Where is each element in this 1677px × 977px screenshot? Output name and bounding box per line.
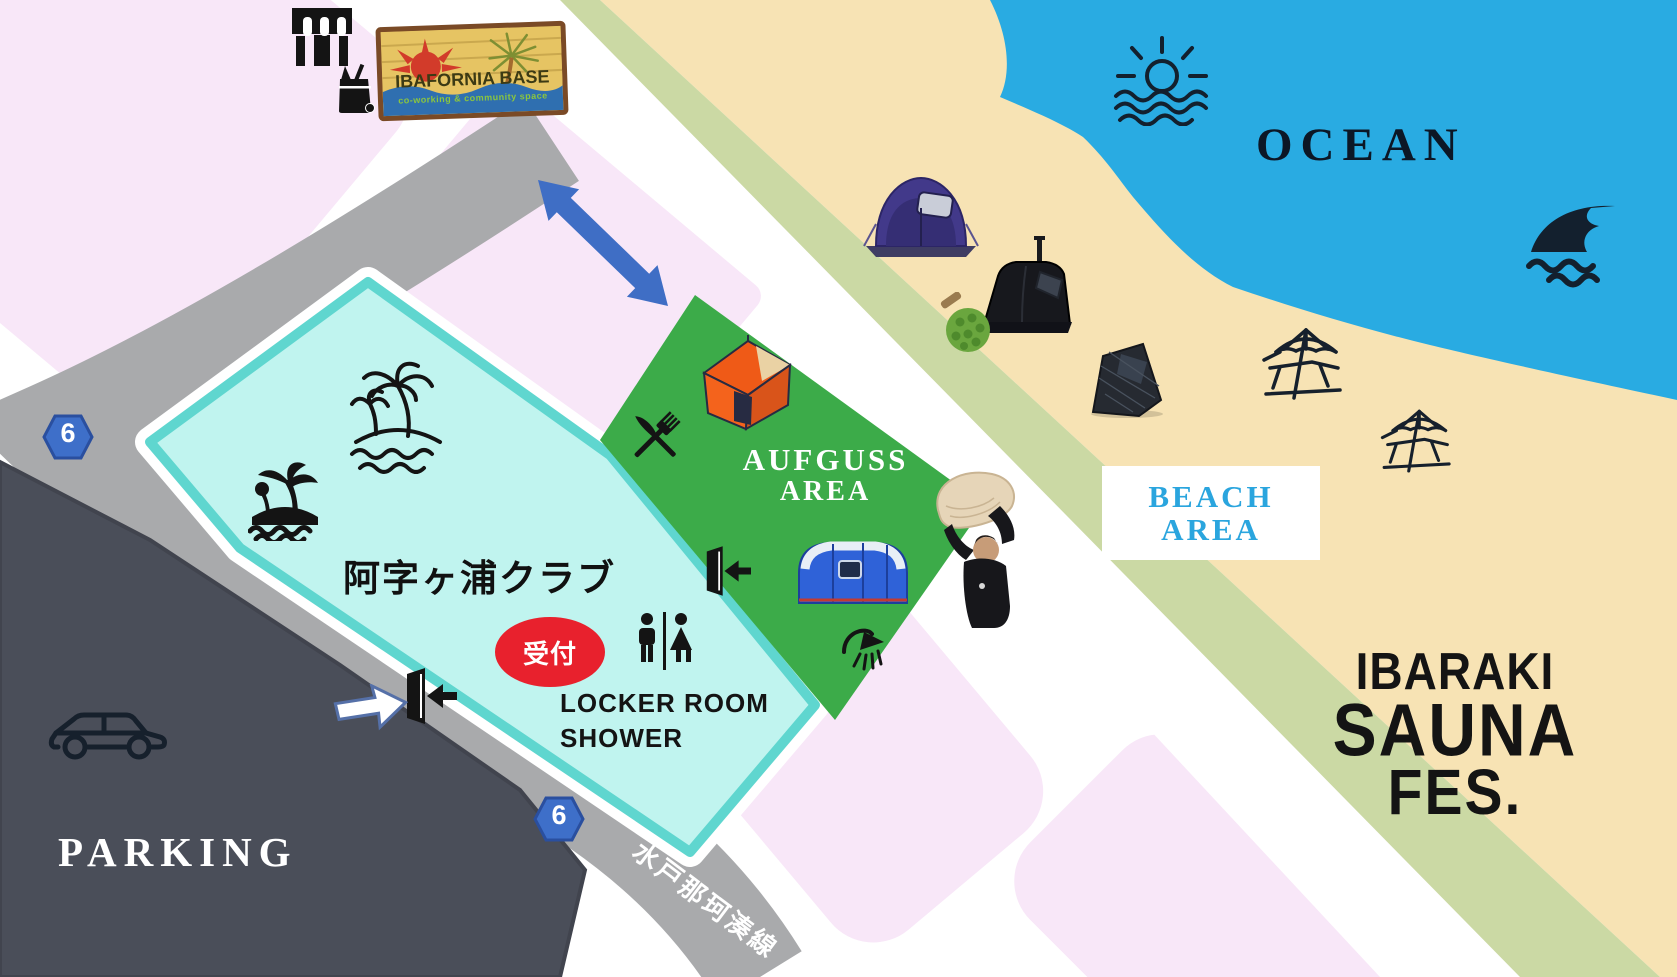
sauna-tent-purple bbox=[862, 164, 980, 259]
car-icon bbox=[48, 695, 173, 765]
parking-label: PARKING bbox=[58, 828, 298, 876]
sauna-tent-mesh bbox=[1085, 338, 1170, 418]
double-arrow-icon bbox=[522, 168, 682, 320]
fork-knife-icon bbox=[628, 408, 682, 464]
storefront-icon bbox=[290, 8, 354, 68]
locker-label-line2: SHOWER bbox=[560, 721, 769, 756]
palm-island-outline-icon bbox=[348, 356, 448, 474]
entrance-door-icon bbox=[405, 668, 457, 724]
beach-label-line1: BEACH bbox=[1102, 481, 1320, 512]
beach-lounger-icon bbox=[1368, 406, 1460, 478]
map-canvas: IBAFORNIA BASE co-working & community sp… bbox=[0, 0, 1677, 977]
vihta-whisk-icon bbox=[938, 292, 992, 356]
route-badge: 6 bbox=[42, 414, 94, 460]
reception-label: 受付 bbox=[523, 634, 577, 671]
club-name-label: 阿字ヶ浦クラブ bbox=[343, 548, 616, 602]
locker-label-line1: LOCKER ROOM bbox=[560, 686, 769, 721]
event-title-line3: FES. bbox=[1290, 761, 1620, 827]
beach-lounger-icon bbox=[1256, 324, 1344, 406]
route-number: 6 bbox=[42, 418, 94, 449]
aufguss-label-line2: AREA bbox=[718, 477, 933, 506]
grocery-bag-icon bbox=[333, 62, 375, 114]
beach-area-label: BEACH AREA bbox=[1102, 466, 1320, 560]
beach-label-line2: AREA bbox=[1102, 514, 1320, 545]
sauna-tent-blue bbox=[795, 533, 911, 607]
restroom-icon bbox=[634, 612, 696, 670]
aufguss-performer bbox=[930, 466, 1030, 628]
sauna-tent-orange bbox=[696, 333, 796, 433]
ocean-label: OCEAN bbox=[1256, 118, 1466, 172]
entrance-door-icon bbox=[705, 545, 751, 597]
white-arrow-icon bbox=[332, 684, 410, 732]
locker-room-label: LOCKER ROOM SHOWER bbox=[560, 686, 769, 756]
route-number: 6 bbox=[533, 800, 585, 831]
aufguss-label-line1: AUFGUSS bbox=[718, 444, 933, 477]
aufguss-area-label: AUFGUSS AREA bbox=[718, 444, 933, 506]
shower-icon bbox=[840, 622, 886, 674]
sunrise-icon bbox=[1108, 30, 1216, 126]
reception-badge: 受付 bbox=[495, 617, 605, 687]
event-title: IBARAKI SAUNA FES. bbox=[1290, 648, 1620, 824]
route-badge: 6 bbox=[533, 796, 585, 842]
palm-island-filled-icon bbox=[248, 455, 322, 541]
wave-icon bbox=[1515, 200, 1625, 288]
ibafornia-base-sign: IBAFORNIA BASE co-working & community sp… bbox=[375, 21, 568, 122]
